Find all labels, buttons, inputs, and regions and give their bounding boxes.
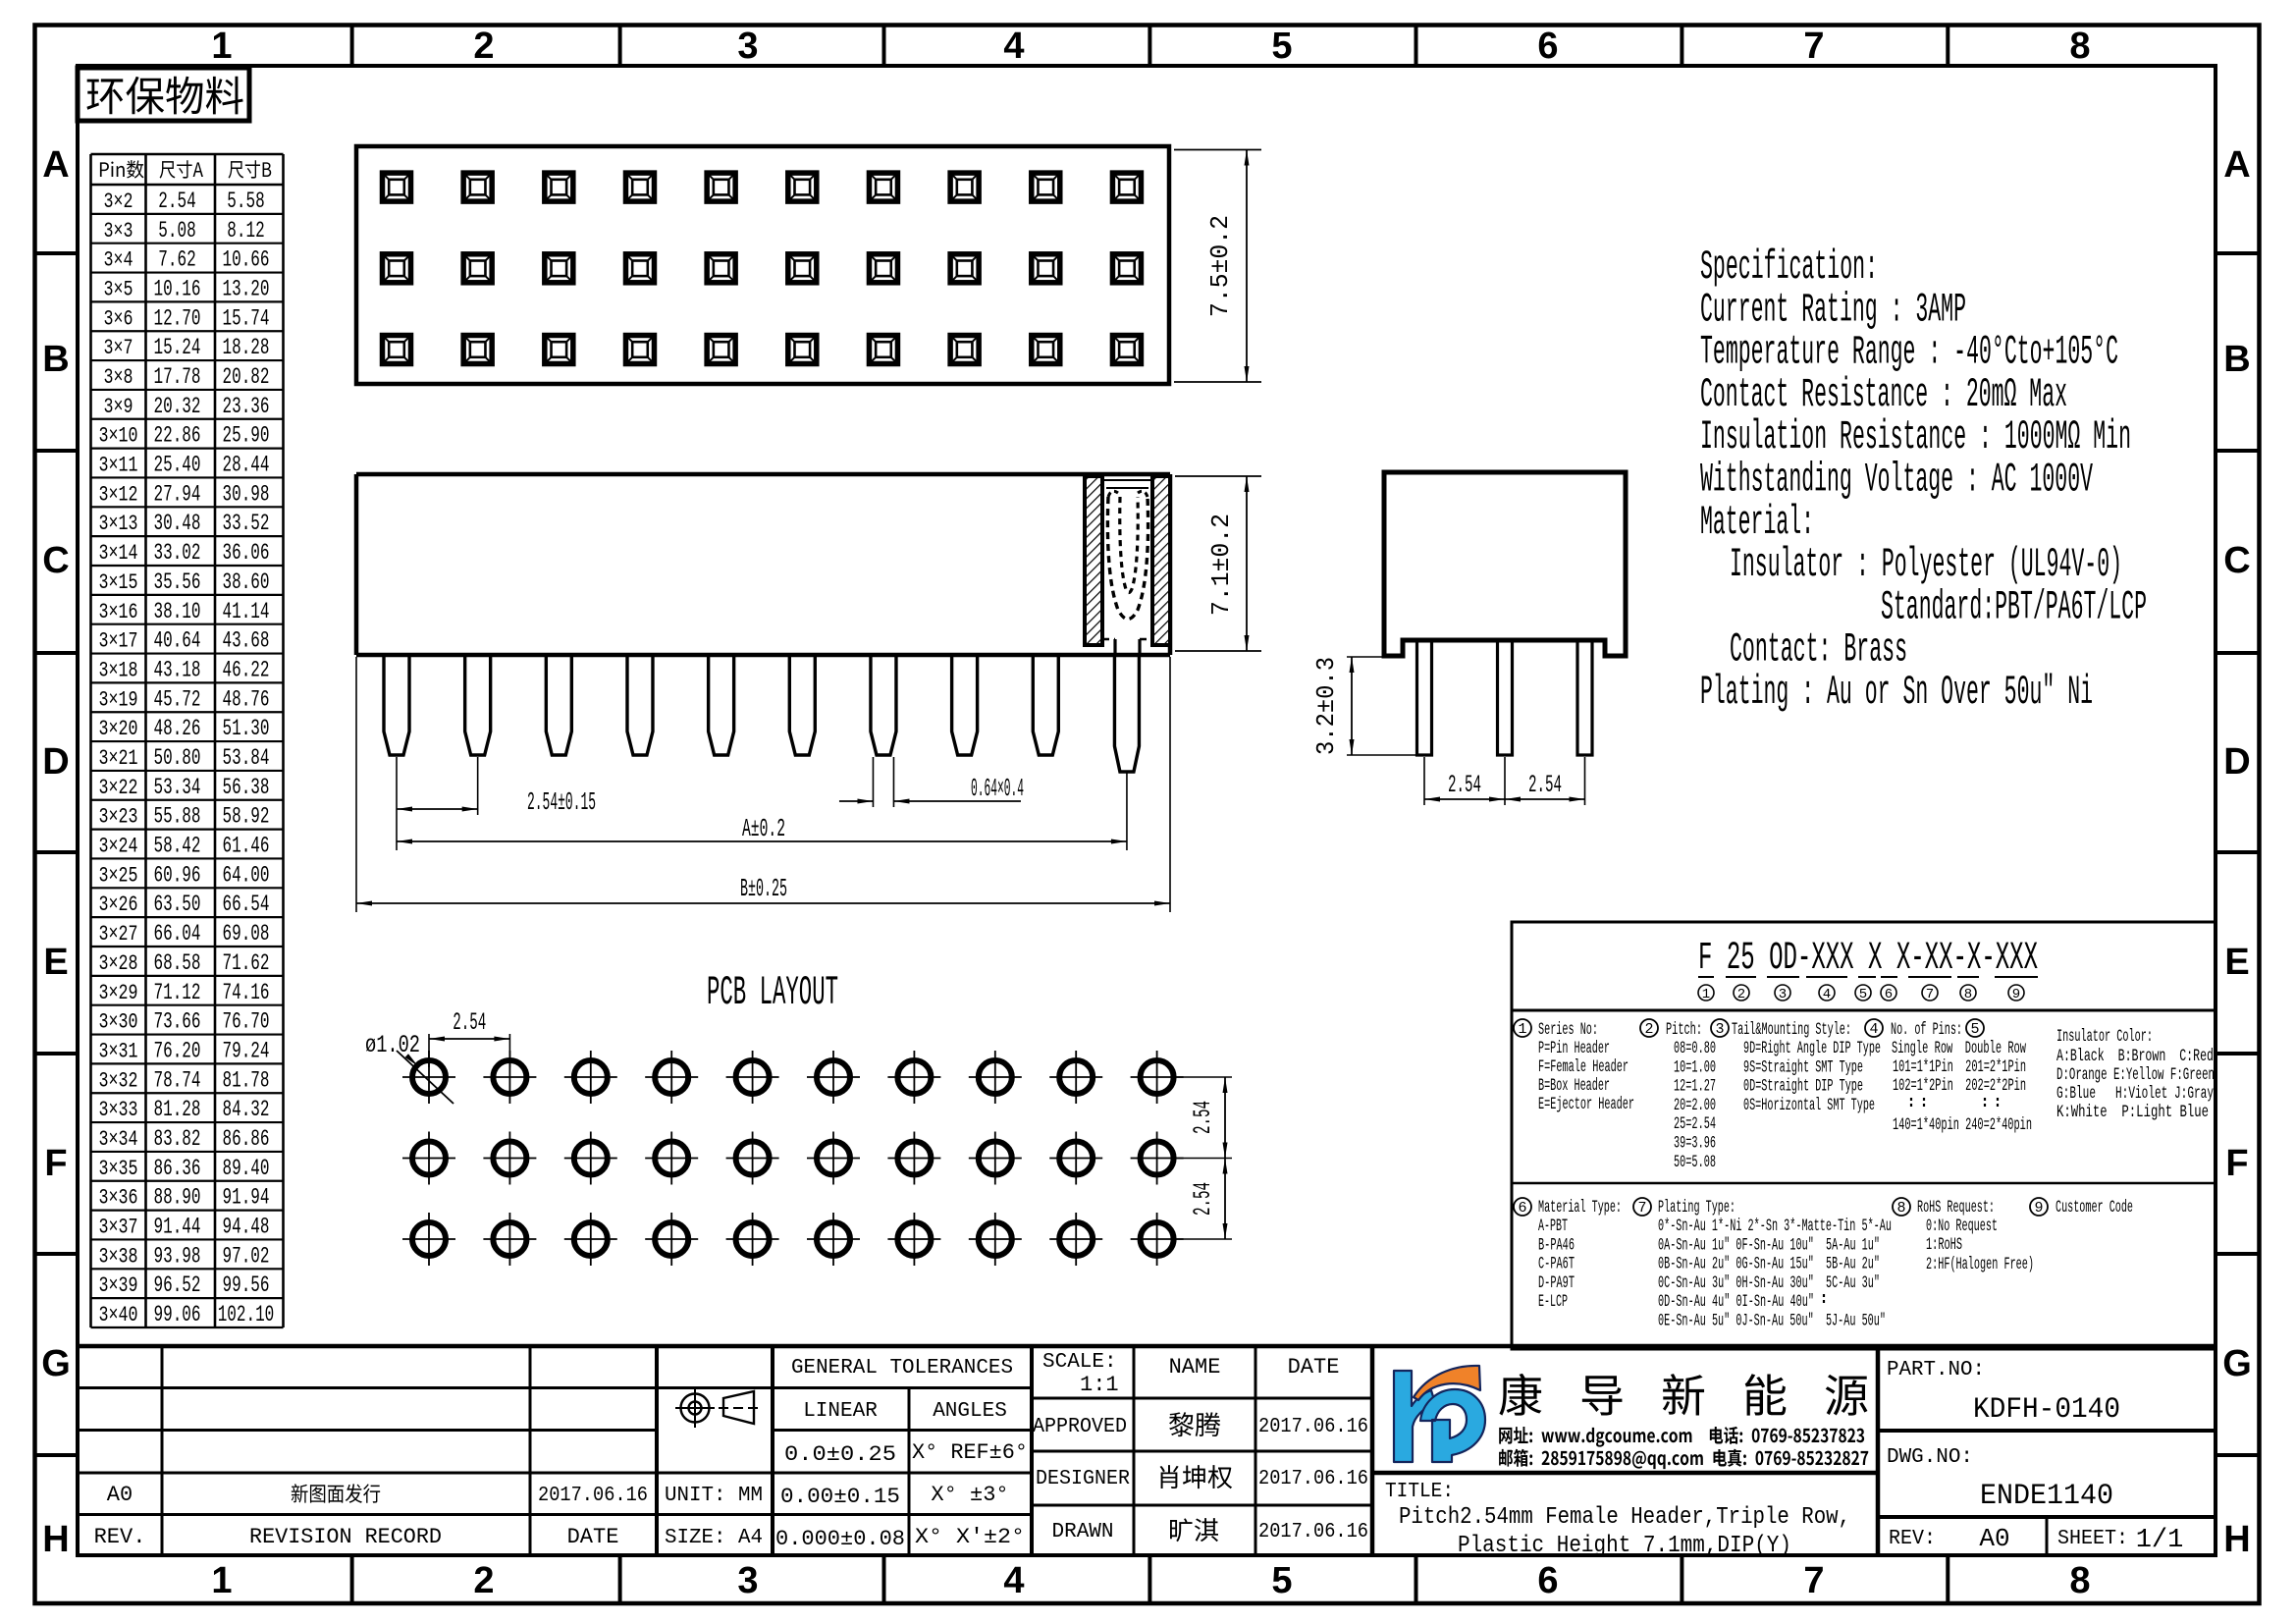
svg-text:C: C [42,540,69,581]
svg-text:9S=Straight SMT Type: 9S=Straight SMT Type [1743,1057,1863,1077]
svg-text:NAME: NAME [1169,1355,1221,1380]
svg-text:2.54: 2.54 [158,189,195,214]
svg-text:5: 5 [1271,26,1292,67]
svg-text:ENDE1140: ENDE1140 [1980,1480,2113,1513]
svg-text:Plating Type:: Plating Type: [1658,1198,1735,1218]
svg-text:66.04: 66.04 [154,921,201,947]
svg-text:2:HF(Halogen Free): 2:HF(Halogen Free) [1926,1255,2034,1274]
svg-text:58.42: 58.42 [154,834,201,859]
svg-text:Specification:: Specification: [1700,244,1878,291]
svg-text:97.02: 97.02 [223,1243,270,1269]
svg-text:LINEAR: LINEAR [803,1400,878,1423]
svg-text:18.28: 18.28 [223,335,270,360]
svg-text:55.88: 55.88 [154,804,201,830]
svg-text:30.48: 30.48 [154,511,201,536]
svg-text:101=1*1Pin 201=2*1Pin: 101=1*1Pin 201=2*1Pin [1893,1057,2026,1077]
svg-text:40.64: 40.64 [154,628,201,654]
svg-text:60.96: 60.96 [154,862,201,888]
svg-text:3×19: 3×19 [99,687,138,712]
svg-text:C-PA6T: C-PA6T [1538,1255,1575,1274]
svg-text:12.70: 12.70 [154,305,201,331]
svg-text:5.08: 5.08 [158,218,195,244]
svg-text:0.000±0.08: 0.000±0.08 [775,1527,905,1551]
svg-text:64.00: 64.00 [223,862,270,888]
svg-text:81.78: 81.78 [223,1067,270,1093]
svg-text:25=2.54: 25=2.54 [1674,1114,1716,1134]
svg-text:6: 6 [1518,1200,1526,1217]
svg-text:61.46: 61.46 [223,834,270,859]
svg-text:1:1: 1:1 [1080,1373,1119,1397]
svg-text:PCB LAYOUT: PCB LAYOUT [707,969,838,1016]
svg-text:1/1: 1/1 [2136,1526,2184,1555]
svg-text:7: 7 [1803,1560,1824,1601]
svg-text:APPROVED: APPROVED [1033,1416,1127,1438]
svg-text:0S=Horizontal SMT Type: 0S=Horizontal SMT Type [1743,1096,1875,1115]
svg-text:45.72: 45.72 [154,686,201,712]
svg-text:10=1.00: 10=1.00 [1674,1057,1716,1077]
svg-text:0B-Sn-Au 2u" 0G-Sn-Au 15u" 5B: 0B-Sn-Au 2u" 0G-Sn-Au 15u" 5B-Au 2u" [1658,1255,1880,1274]
svg-text:93.98: 93.98 [154,1243,201,1269]
svg-text:2.54: 2.54 [1189,1182,1217,1216]
svg-text:G:Blue H:Violet J:Gray: G:Blue H:Violet J:Gray [2056,1084,2214,1104]
svg-text:E=Ejector Header: E=Ejector Header [1538,1095,1634,1114]
svg-text:81.28: 81.28 [154,1097,201,1122]
svg-text:39=3.96: 39=3.96 [1674,1134,1716,1154]
svg-text:43.68: 43.68 [223,628,270,654]
svg-text:48.26: 48.26 [154,716,201,741]
svg-text:5: 5 [1970,1021,1979,1038]
svg-text:3×12: 3×12 [99,482,138,507]
svg-text:2.54: 2.54 [1528,771,1562,799]
svg-text:UNIT: MM: UNIT: MM [665,1485,763,1507]
svg-text:A±0.2: A±0.2 [742,814,785,843]
svg-text:Pitch:: Pitch: [1666,1020,1702,1040]
svg-text:SIZE: A4: SIZE: A4 [665,1527,763,1549]
svg-text:B: B [42,339,69,380]
svg-text:D: D [2223,741,2250,783]
svg-text:X° ±3°: X° ±3° [931,1483,1008,1507]
svg-text:B-PA46: B-PA46 [1538,1235,1575,1255]
svg-text:3×39: 3×39 [99,1273,138,1298]
svg-text:3×30: 3×30 [99,1010,138,1035]
svg-text:2017.06.16: 2017.06.16 [1258,1416,1368,1438]
svg-text:F=Female Header: F=Female Header [1538,1057,1629,1077]
svg-text:50.80: 50.80 [154,745,201,771]
svg-text:3×8: 3×8 [104,365,133,390]
svg-text:13.20: 13.20 [223,276,270,301]
svg-text:51.30: 51.30 [223,716,270,741]
svg-text:1:RoHS: 1:RoHS [1926,1235,1962,1255]
svg-text:KDFH-0140: KDFH-0140 [1973,1393,2120,1427]
svg-text:4: 4 [1869,1021,1878,1038]
svg-text:25.40: 25.40 [154,453,201,478]
svg-text:SHEET:: SHEET: [2057,1528,2128,1550]
svg-text:REV:: REV: [1889,1528,1936,1550]
svg-text:Plating : Au or Sn Over 50u" N: Plating : Au or Sn Over 50u" Ni [1700,669,2093,716]
svg-text:Plastic Height 7.1mm,DIP(Y): Plastic Height 7.1mm,DIP(Y) [1458,1533,1791,1559]
svg-text:4: 4 [1003,26,1024,67]
svg-text:25.90: 25.90 [223,423,270,449]
svg-text:X° REF±6°: X° REF±6° [912,1440,1028,1465]
svg-text:2.54±0.15: 2.54±0.15 [527,787,596,817]
svg-text:GENERAL TOLERANCES: GENERAL TOLERANCES [791,1357,1013,1380]
svg-text:K:White P:Light Blue: K:White P:Light Blue [2056,1103,2209,1122]
svg-text:F: F [2225,1143,2248,1184]
svg-text:C: C [2223,540,2250,581]
svg-text:5: 5 [1271,1560,1292,1601]
svg-text:08=0.80: 08=0.80 [1674,1039,1716,1058]
svg-text:F: F [44,1143,67,1184]
svg-text:3×5: 3×5 [104,277,133,301]
svg-text:94.48: 94.48 [223,1215,270,1240]
svg-text:2017.06.16: 2017.06.16 [1258,1468,1368,1490]
svg-text:DRAWN: DRAWN [1051,1521,1113,1543]
svg-text:86.86: 86.86 [223,1126,270,1152]
svg-text:20.82: 20.82 [223,364,270,390]
svg-text:3×9: 3×9 [104,395,133,419]
svg-text:3×23: 3×23 [99,805,138,830]
svg-text:0D=Straight DIP Type: 0D=Straight DIP Type [1743,1077,1863,1097]
svg-text:A: A [42,144,69,186]
svg-text:89.40: 89.40 [223,1156,270,1181]
svg-text:12=1.27: 12=1.27 [1674,1077,1716,1097]
svg-text:2017.06.16: 2017.06.16 [1258,1521,1368,1543]
svg-text:63.50: 63.50 [154,892,201,917]
svg-text:3×14: 3×14 [99,541,138,566]
svg-text:B: B [2223,339,2250,380]
svg-text:3×20: 3×20 [99,717,138,741]
svg-text:Customer Code: Customer Code [2056,1198,2133,1218]
svg-text:1: 1 [1702,987,1710,1002]
svg-text:96.52: 96.52 [154,1272,201,1298]
svg-text:102=1*2Pin 202=2*2Pin: 102=1*2Pin 202=2*2Pin [1893,1076,2026,1096]
svg-text:79.24: 79.24 [223,1038,270,1063]
svg-text:23.36: 23.36 [223,394,270,419]
svg-text:10.66: 10.66 [223,247,270,273]
svg-text:8: 8 [1964,987,1972,1002]
svg-text:9D=Right Angle DIP Type: 9D=Right Angle DIP Type [1743,1039,1881,1058]
svg-text:33.02: 33.02 [154,540,201,566]
svg-text:3×15: 3×15 [99,570,138,595]
svg-text:2.54: 2.54 [1448,771,1481,799]
svg-text:27.94: 27.94 [154,481,201,507]
svg-text:3×34: 3×34 [99,1127,138,1152]
svg-text:4: 4 [1003,1560,1024,1601]
svg-text:3×35: 3×35 [99,1157,138,1181]
svg-text:0*-Sn-Au 1*-Ni 2*-Sn 3*-Matte-: 0*-Sn-Au 1*-Ni 2*-Sn 3*-Matte-Tin 5*-Au [1658,1217,1892,1236]
svg-text:69.08: 69.08 [223,921,270,947]
svg-text:2.54: 2.54 [1189,1101,1217,1134]
svg-text:3: 3 [1779,987,1787,1002]
svg-text:66.54: 66.54 [223,892,270,917]
svg-text:B=Box Header: B=Box Header [1538,1076,1610,1096]
svg-text:20.32: 20.32 [154,394,201,419]
svg-text:Current Rating : 3AMP: Current Rating : 3AMP [1700,286,1966,333]
svg-text:15.74: 15.74 [223,305,270,331]
svg-text:A:Black B:Brown C:Red: A:Black B:Brown C:Red [2056,1047,2214,1066]
svg-text:4: 4 [1823,987,1831,1002]
svg-text:6: 6 [1537,1560,1558,1601]
svg-text:Material Type:: Material Type: [1538,1198,1622,1218]
svg-text:1: 1 [211,26,232,67]
svg-text:43.18: 43.18 [154,657,201,682]
svg-text:2: 2 [1737,987,1745,1002]
svg-text:53.84: 53.84 [223,745,270,771]
svg-text:41.14: 41.14 [223,599,270,624]
svg-text:8.12: 8.12 [227,218,264,244]
svg-text:3×13: 3×13 [99,512,138,536]
svg-text:0C-Sn-Au 3u" 0H-Sn-Au 30u" 5C: 0C-Sn-Au 3u" 0H-Sn-Au 30u" 5C-Au 3u" [1658,1273,1880,1293]
svg-text:86.36: 86.36 [154,1156,201,1181]
svg-text:3×10: 3×10 [99,424,138,449]
svg-text:2: 2 [473,26,494,67]
svg-text:8: 8 [1896,1200,1905,1217]
svg-text:H: H [2223,1519,2250,1560]
svg-text:83.82: 83.82 [154,1126,201,1152]
svg-text:3×37: 3×37 [99,1216,138,1240]
svg-text:7: 7 [1803,26,1824,67]
svg-text:3×17: 3×17 [99,629,138,654]
svg-text:3×3: 3×3 [104,219,133,244]
svg-text:76.70: 76.70 [223,1009,270,1035]
svg-text:REV.: REV. [94,1525,146,1549]
svg-text:Insulator : Polyester (UL94V-0: Insulator : Polyester (UL94V-0) [1730,541,2122,588]
svg-text:ø1.02: ø1.02 [365,1031,420,1059]
svg-text:3: 3 [737,26,758,67]
svg-text:3.2±0.3: 3.2±0.3 [1311,657,1341,755]
svg-text:REVISION RECORD: REVISION RECORD [249,1525,442,1549]
svg-text:22.86: 22.86 [154,423,201,449]
svg-text:74.16: 74.16 [223,980,270,1005]
svg-text:H: H [42,1519,69,1560]
svg-text:28.44: 28.44 [223,453,270,478]
svg-text:RoHS Request:: RoHS Request: [1917,1198,1995,1218]
svg-text:3: 3 [1715,1021,1724,1038]
svg-text:A-PBT: A-PBT [1538,1217,1568,1236]
svg-text:X° X'±2°: X° X'±2° [915,1525,1025,1549]
svg-text:5.58: 5.58 [227,189,264,214]
svg-text:30.98: 30.98 [223,481,270,507]
svg-text:Temperature Range : -40°Cto+10: Temperature Range : -40°Cto+105°C [1700,329,2118,376]
svg-text:3×7: 3×7 [104,336,133,360]
svg-text:99.06: 99.06 [154,1302,201,1327]
svg-text:102.10: 102.10 [218,1302,275,1327]
svg-text:2.54: 2.54 [453,1008,486,1037]
svg-text:76.20: 76.20 [154,1038,201,1063]
svg-text:3×40: 3×40 [99,1303,138,1327]
svg-text:15.24: 15.24 [154,335,201,360]
svg-text:E-LCP: E-LCP [1538,1292,1568,1312]
svg-text:5: 5 [1859,987,1867,1002]
svg-text:Pitch2.54mm Female Header,Trip: Pitch2.54mm Female Header,Triple Row, [1399,1504,1850,1531]
svg-text:Material:: Material: [1700,499,1814,546]
svg-text:1: 1 [1518,1021,1526,1038]
svg-text:Series No:: Series No: [1538,1020,1598,1040]
svg-text:2: 2 [1644,1021,1653,1038]
svg-text:7.5±0.2: 7.5±0.2 [1205,215,1235,317]
svg-text:3×4: 3×4 [104,248,133,273]
svg-text:Single Row Double Row: Single Row Double Row [1892,1039,2026,1058]
svg-text:A0: A0 [107,1483,133,1507]
svg-text:38.60: 38.60 [223,569,270,595]
svg-text:Standard:PBT/PA6T/LCP: Standard:PBT/PA6T/LCP [1881,583,2147,630]
svg-text:SCALE:: SCALE: [1042,1351,1117,1374]
svg-text:6: 6 [1885,987,1893,1002]
svg-text:3×38: 3×38 [99,1244,138,1269]
svg-text:3×24: 3×24 [99,835,138,859]
svg-text:3×33: 3×33 [99,1098,138,1122]
svg-text:71.62: 71.62 [223,950,270,976]
svg-text:1: 1 [211,1560,232,1601]
svg-text:58.92: 58.92 [223,804,270,830]
svg-text:E: E [43,942,68,983]
svg-text:3×11: 3×11 [99,454,138,478]
svg-text:78.74: 78.74 [154,1067,201,1093]
svg-text:0E-Sn-Au 5u" 0J-Sn-Au 50u" 5J: 0E-Sn-Au 5u" 0J-Sn-Au 50u" 5J-Au 50u" [1658,1312,1886,1331]
svg-text:3×2: 3×2 [104,189,133,214]
svg-text:3×29: 3×29 [99,981,138,1005]
svg-text:3×26: 3×26 [99,893,138,917]
svg-text:A: A [2223,144,2250,186]
svg-text:DATE: DATE [1288,1355,1340,1380]
svg-text:8: 8 [2069,26,2090,67]
svg-text:3×36: 3×36 [99,1186,138,1211]
svg-text:35.56: 35.56 [154,569,201,595]
svg-text:88.90: 88.90 [154,1185,201,1211]
svg-text:Contact: Brass: Contact: Brass [1730,626,1907,674]
svg-text:8: 8 [2069,1560,2090,1601]
svg-text:0.0±0.25: 0.0±0.25 [784,1442,896,1467]
svg-text:DWG.NO:: DWG.NO: [1887,1446,1973,1469]
svg-text:140=1*40pin 240=2*40pin: 140=1*40pin 240=2*40pin [1893,1115,2032,1135]
svg-text:91.44: 91.44 [154,1215,201,1240]
svg-text:TITLE:: TITLE: [1385,1481,1454,1503]
svg-text:PART.NO:: PART.NO: [1887,1359,1985,1381]
svg-text:73.66: 73.66 [154,1009,201,1035]
svg-text:0.00±0.15: 0.00±0.15 [780,1485,900,1509]
svg-text:Withstanding Voltage : AC 1000: Withstanding Voltage : AC 1000V [1700,457,2093,504]
svg-text:D-PA9T: D-PA9T [1538,1273,1575,1293]
svg-text:9: 9 [2034,1200,2043,1217]
svg-text:3×6: 3×6 [104,306,133,331]
svg-text:P=Pin Header: P=Pin Header [1538,1039,1610,1058]
svg-text:0:No Request: 0:No Request [1926,1217,1998,1236]
svg-text:3×25: 3×25 [99,863,138,888]
svg-text:0.64×0.4: 0.64×0.4 [971,774,1024,803]
svg-text:2: 2 [473,1560,494,1601]
svg-text:50=5.08: 50=5.08 [1674,1153,1716,1172]
svg-text:3×31: 3×31 [99,1039,138,1063]
svg-text:56.38: 56.38 [223,775,270,800]
svg-text:46.22: 46.22 [223,657,270,682]
svg-text:84.32: 84.32 [223,1097,270,1122]
svg-text:0D-Sn-Au 4u" 0I-Sn-Au 40u": 0D-Sn-Au 4u" 0I-Sn-Au 40u" [1658,1292,1814,1312]
svg-text:G: G [41,1343,71,1384]
svg-text:B±0.25: B±0.25 [740,874,787,903]
svg-text:3: 3 [737,1560,758,1601]
svg-text:71.12: 71.12 [154,980,201,1005]
svg-text:99.56: 99.56 [223,1272,270,1298]
svg-text:3×18: 3×18 [99,658,138,682]
svg-text:3×27: 3×27 [99,922,138,947]
svg-text:0A-Sn-Au 1u" 0F-Sn-Au 10u" 5A: 0A-Sn-Au 1u" 0F-Sn-Au 10u" 5A-Au 1u" [1658,1235,1880,1255]
svg-text:D: D [42,741,69,783]
svg-text:7.62: 7.62 [158,247,195,273]
svg-text:3×32: 3×32 [99,1068,138,1093]
svg-text:ANGLES: ANGLES [933,1400,1007,1423]
svg-text:DATE: DATE [567,1525,619,1549]
svg-text:A0: A0 [1979,1524,2009,1553]
svg-text:33.52: 33.52 [223,511,270,536]
svg-text:68.58: 68.58 [154,950,201,976]
svg-text:48.76: 48.76 [223,686,270,712]
svg-text:9: 9 [2012,987,2020,1002]
svg-text:7.1±0.2: 7.1±0.2 [1206,514,1236,616]
svg-text:3×21: 3×21 [99,746,138,771]
svg-text:DESIGNER: DESIGNER [1036,1468,1130,1490]
svg-text:Insulation Resistance : 1000MΩ: Insulation Resistance : 1000MΩ Min [1700,413,2131,460]
svg-text:Insulator Color:: Insulator Color: [2056,1027,2153,1047]
svg-text:2017.06.16: 2017.06.16 [538,1485,648,1507]
svg-text:6: 6 [1537,26,1558,67]
svg-text:91.94: 91.94 [223,1185,270,1211]
svg-text:3×16: 3×16 [99,600,138,624]
svg-text:10.16: 10.16 [154,276,201,301]
svg-text:No. of Pins:: No. of Pins: [1891,1020,1962,1040]
svg-text:38.10: 38.10 [154,599,201,624]
svg-text:36.06: 36.06 [223,540,270,566]
svg-text:D:Orange E:Yellow F:Green: D:Orange E:Yellow F:Green [2056,1065,2215,1085]
svg-text:E: E [2224,942,2249,983]
svg-text:G: G [2222,1343,2252,1384]
svg-text:7: 7 [1637,1200,1646,1217]
svg-text:3×22: 3×22 [99,776,138,800]
svg-text:53.34: 53.34 [154,775,201,800]
svg-text:Tail&Mounting Style:: Tail&Mounting Style: [1732,1020,1851,1040]
svg-text:17.78: 17.78 [154,364,201,390]
svg-text:Contact Resistance : 20mΩ Max: Contact Resistance : 20mΩ Max [1700,371,2067,418]
svg-text:20=2.00: 20=2.00 [1674,1096,1716,1115]
svg-text:7: 7 [1926,987,1934,1002]
svg-text:3×28: 3×28 [99,951,138,976]
svg-text:F 25 OD-XXX X X-XX-X-XXX: F 25 OD-XXX X X-XX-X-XXX [1698,937,2038,981]
